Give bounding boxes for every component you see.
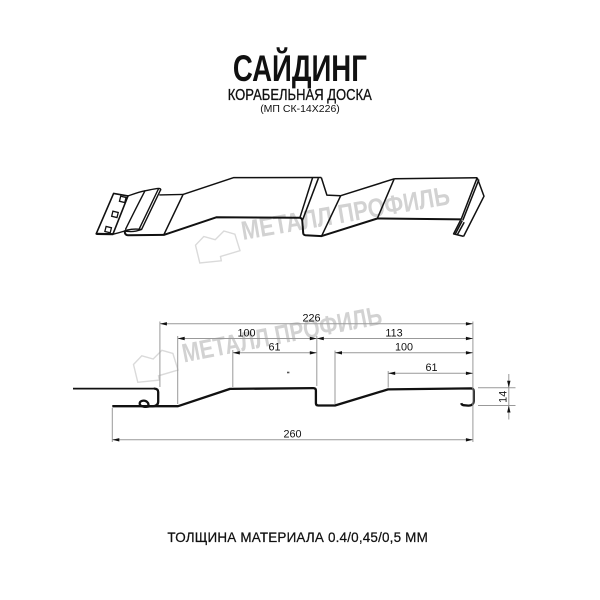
svg-text:61: 61 [425, 362, 437, 374]
svg-text:МЕТАЛЛ ПРОФИЛЬ: МЕТАЛЛ ПРОФИЛЬ [179, 300, 384, 368]
svg-text:100: 100 [395, 342, 413, 354]
svg-text:226: 226 [302, 313, 320, 325]
svg-text:61: 61 [268, 342, 280, 354]
svg-text:МЕТАЛЛ ПРОФИЛЬ: МЕТАЛЛ ПРОФИЛЬ [239, 180, 452, 245]
svg-text:260: 260 [283, 429, 301, 441]
svg-text:100: 100 [237, 327, 255, 339]
svg-text:113: 113 [385, 327, 402, 339]
svg-text:14: 14 [498, 391, 510, 403]
